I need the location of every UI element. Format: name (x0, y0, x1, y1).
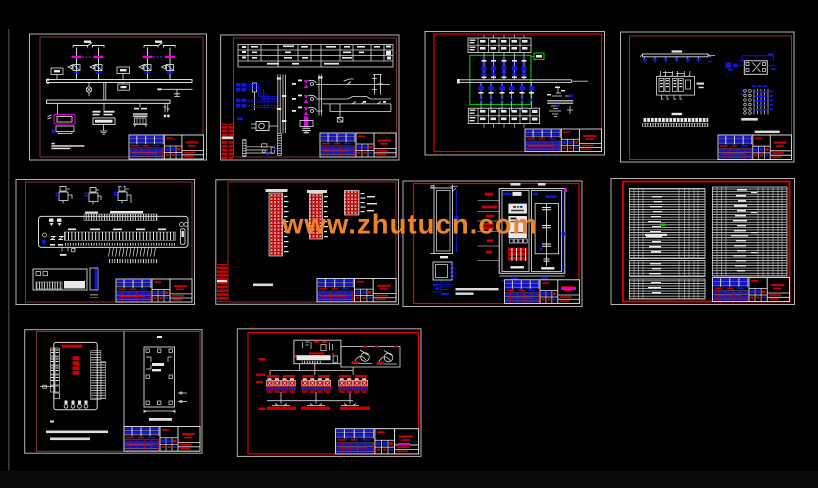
svg-text:www.zhutucn.com: www.zhutucn.com (281, 209, 538, 240)
